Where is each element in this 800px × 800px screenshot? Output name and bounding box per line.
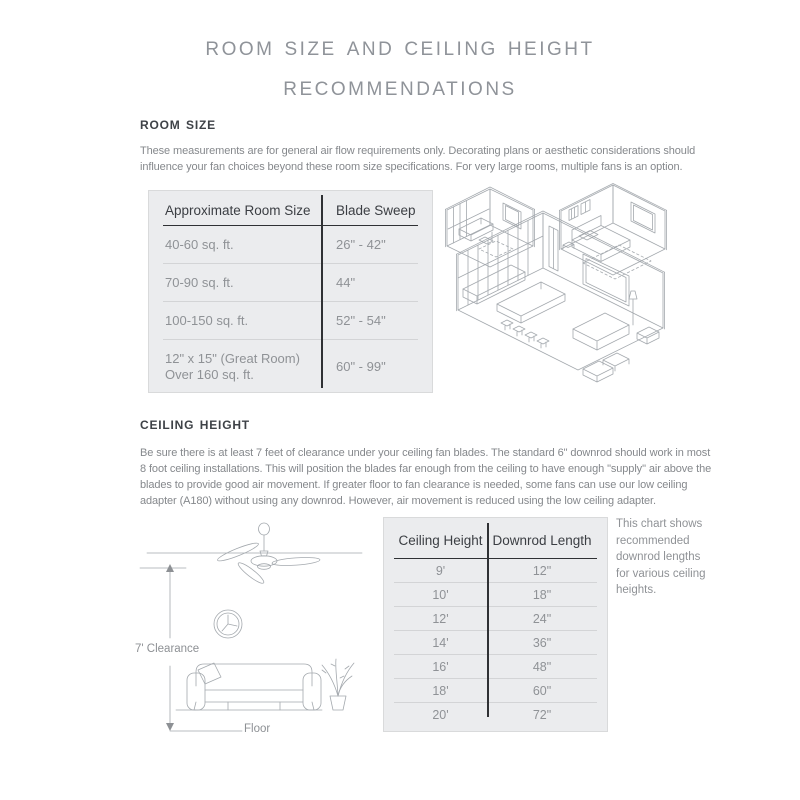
page-title: Room Size and Ceiling Height Recommendat…	[0, 26, 800, 106]
isometric-rooms-illustration	[433, 183, 710, 395]
downrod-length-cell: 12"	[487, 564, 597, 578]
ceiling-height-cell: 12'	[394, 612, 487, 626]
column-divider	[321, 195, 323, 388]
infographic-page: Room Size and Ceiling Height Recommendat…	[0, 0, 800, 800]
blade-sweep-cell: 44"	[321, 275, 418, 290]
downrod-length-cell: 72"	[487, 708, 597, 722]
table-row: 10' 18"	[394, 582, 597, 606]
table-row: 16' 48"	[394, 654, 597, 678]
ceiling-height-cell: 16'	[394, 660, 487, 674]
table-row: 12" x 15" (Great Room) Over 160 sq. ft. …	[163, 339, 418, 393]
downrod-length-cell: 24"	[487, 612, 597, 626]
room-size-heading: Room Size	[140, 114, 216, 134]
room-size-table: Approximate Room Size Blade Sweep 40-60 …	[148, 190, 433, 393]
column-divider	[487, 523, 489, 717]
fan-clearance-illustration: 7' Clearance Floor	[130, 520, 380, 750]
table-row: 12' 24"	[394, 606, 597, 630]
fan-clearance-drawing	[130, 520, 380, 750]
table-row: 9' 12"	[394, 559, 597, 582]
ceiling-height-description: Be sure there is at least 7 feet of clea…	[140, 445, 712, 509]
table-row: 14' 36"	[394, 630, 597, 654]
downrod-length-cell: 48"	[487, 660, 597, 674]
header-downrod-length: Downrod Length	[487, 533, 597, 548]
ceiling-height-cell: 14'	[394, 636, 487, 650]
ceiling-height-cell: 9'	[394, 564, 487, 578]
room-size-table-header-row: Approximate Room Size Blade Sweep	[163, 196, 418, 226]
header-approximate-room-size: Approximate Room Size	[163, 203, 321, 219]
downrod-length-cell: 36"	[487, 636, 597, 650]
downrod-table-header-row: Ceiling Height Downrod Length	[394, 523, 597, 559]
room-size-cell: 100-150 sq. ft.	[163, 313, 321, 329]
room-size-cell: 70-90 sq. ft.	[163, 275, 321, 291]
arrow-down-icon	[166, 723, 174, 731]
table-row: 70-90 sq. ft. 44"	[163, 263, 418, 301]
room-size-cell: 40-60 sq. ft.	[163, 237, 321, 253]
ceiling-height-cell: 20'	[394, 708, 487, 722]
table-row: 100-150 sq. ft. 52" - 54"	[163, 301, 418, 339]
ceiling-height-cell: 18'	[394, 684, 487, 698]
downrod-table: Ceiling Height Downrod Length 9' 12" 10'…	[383, 517, 608, 732]
downrod-length-cell: 18"	[487, 588, 597, 602]
header-blade-sweep: Blade Sweep	[321, 203, 418, 218]
table-row: 20' 72"	[394, 702, 597, 726]
page-title-line1: Room Size and Ceiling Height	[0, 26, 800, 66]
room-size-cell: 12" x 15" (Great Room) Over 160 sq. ft.	[163, 351, 321, 383]
table-row: 18' 60"	[394, 678, 597, 702]
blade-sweep-cell: 26" - 42"	[321, 237, 418, 252]
ceiling-height-cell: 10'	[394, 588, 487, 602]
page-title-line2: Recommendations	[0, 66, 800, 106]
downrod-note: This chart shows recommended downrod len…	[616, 516, 712, 599]
blade-sweep-cell: 60" - 99"	[321, 359, 418, 374]
table-row: 40-60 sq. ft. 26" - 42"	[163, 226, 418, 263]
downrod-length-cell: 60"	[487, 684, 597, 698]
floor-label: Floor	[244, 723, 270, 735]
room-size-description: These measurements are for general air f…	[140, 143, 712, 175]
header-ceiling-height: Ceiling Height	[394, 533, 487, 548]
ceiling-height-heading: Ceiling Height	[140, 414, 250, 434]
clearance-label: 7' Clearance	[135, 643, 215, 655]
blade-sweep-cell: 52" - 54"	[321, 313, 418, 328]
